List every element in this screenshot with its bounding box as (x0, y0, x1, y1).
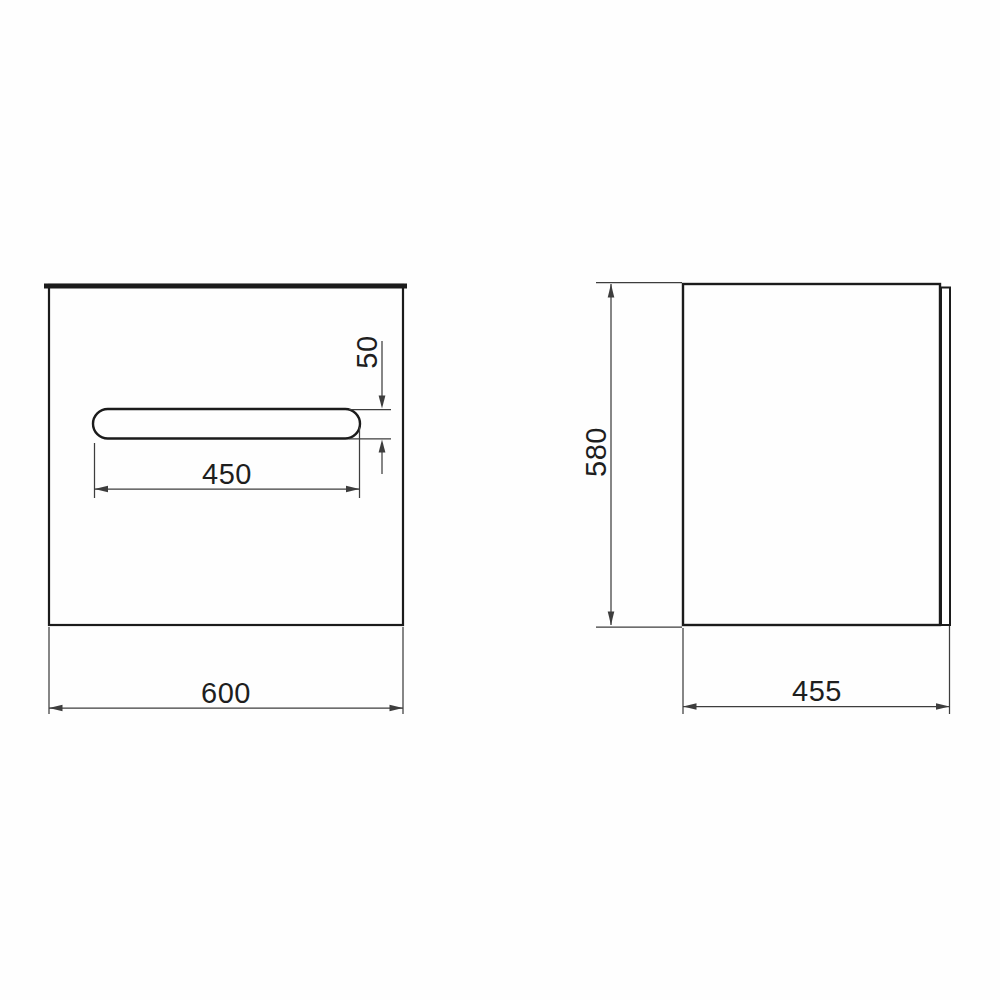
dim-label-handle-height: 50 (351, 335, 383, 368)
dim-600-arrow-left-icon (49, 705, 63, 712)
dim-600-arrow-right-icon (390, 705, 404, 712)
dim-50-arrow-up-icon (379, 440, 386, 453)
dim-455-arrow-right-icon (936, 703, 950, 710)
dim-label-front-width: 600 (201, 677, 251, 709)
side-view-front-panel-strip (941, 288, 950, 626)
dim-450-arrow-right-icon (346, 486, 360, 493)
handle-slot (93, 409, 360, 439)
dim-455-arrow-left-icon (683, 703, 697, 710)
dimension-labels-group: 50 450 600 580 455 (201, 335, 842, 709)
dim-50-arrow-down-icon (379, 396, 386, 409)
dim-580-arrow-down-icon (608, 612, 615, 626)
side-view-outline (683, 284, 940, 625)
dimension-lines-group (49, 283, 950, 715)
dim-label-handle-width: 450 (202, 458, 252, 490)
dim-label-side-depth: 455 (792, 675, 842, 707)
dim-450-arrow-left-icon (95, 486, 109, 493)
arrowheads-group (49, 284, 950, 711)
technical-drawing-canvas: 50 450 600 580 455 (0, 0, 1000, 1000)
dim-580-arrow-up-icon (608, 284, 615, 298)
dim-label-side-height: 580 (580, 427, 612, 477)
front-view-outline (49, 285, 403, 625)
dimension-drawing: 50 450 600 580 455 (0, 0, 1000, 1000)
views-group (47, 284, 951, 625)
